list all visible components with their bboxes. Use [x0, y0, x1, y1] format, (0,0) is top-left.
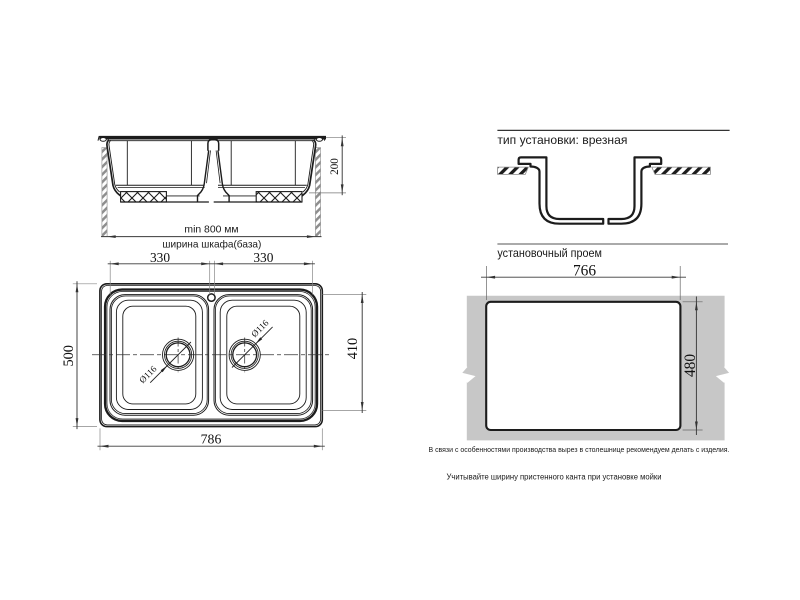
svg-text:200: 200 — [329, 158, 341, 175]
svg-text:ширина шкафа(база): ширина шкафа(база) — [162, 239, 261, 251]
svg-text:480: 480 — [682, 354, 699, 377]
svg-text:установочный проем: установочный проем — [497, 246, 602, 260]
svg-text:330: 330 — [253, 250, 273, 265]
svg-text:786: 786 — [201, 432, 222, 447]
svg-text:330: 330 — [150, 250, 170, 265]
svg-text:тип установки: врезная: тип установки: врезная — [497, 133, 627, 147]
svg-text:min 800 мм: min 800 мм — [184, 225, 238, 236]
svg-text:766: 766 — [573, 263, 596, 280]
svg-text:В связи с особенностями произв: В связи с особенностями производства выр… — [429, 445, 730, 454]
svg-text:Учитывайте ширину пристенного: Учитывайте ширину пристенного канта при … — [447, 473, 662, 482]
svg-text:500: 500 — [61, 345, 77, 366]
svg-text:410: 410 — [345, 338, 361, 359]
